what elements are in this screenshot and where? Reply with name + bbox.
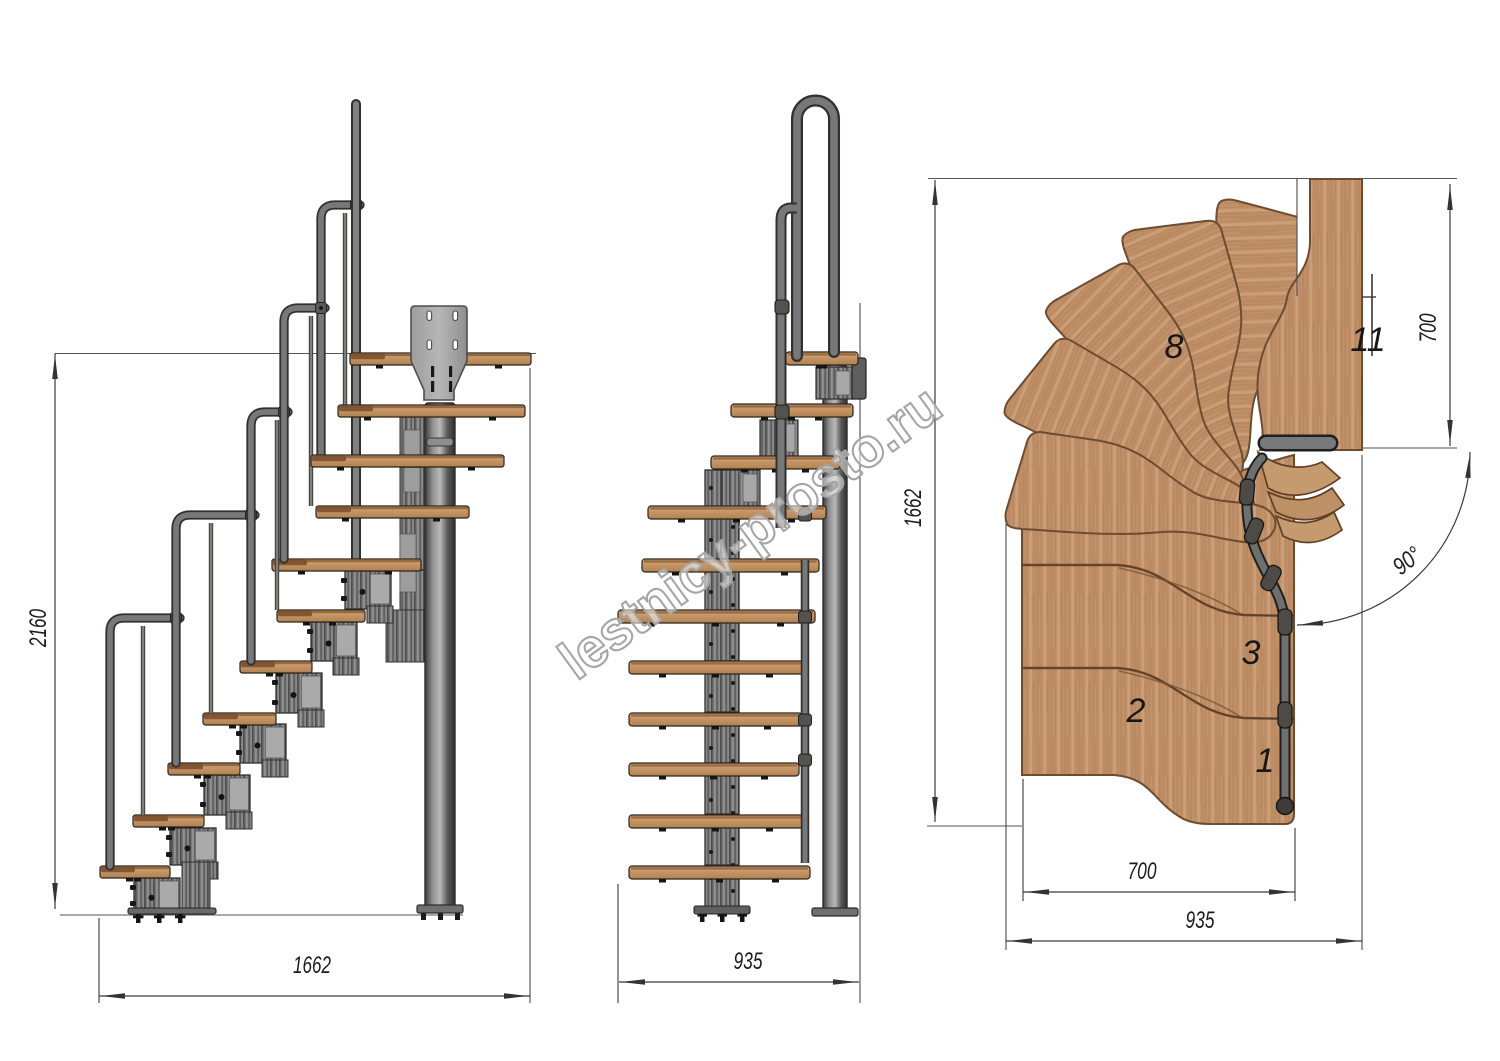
svg-text:1662: 1662	[293, 952, 331, 979]
svg-text:1: 1	[1256, 742, 1275, 780]
svg-text:1662: 1662	[900, 489, 927, 527]
svg-text:700: 700	[1415, 313, 1442, 342]
svg-text:935: 935	[734, 948, 763, 975]
svg-text:2: 2	[1126, 692, 1146, 730]
svg-text:2160: 2160	[25, 609, 52, 648]
svg-text:935: 935	[1186, 907, 1215, 934]
svg-text:700: 700	[1128, 858, 1157, 885]
svg-text:11: 11	[1350, 321, 1385, 359]
svg-text:8: 8	[1165, 328, 1184, 366]
svg-text:3: 3	[1242, 634, 1261, 672]
